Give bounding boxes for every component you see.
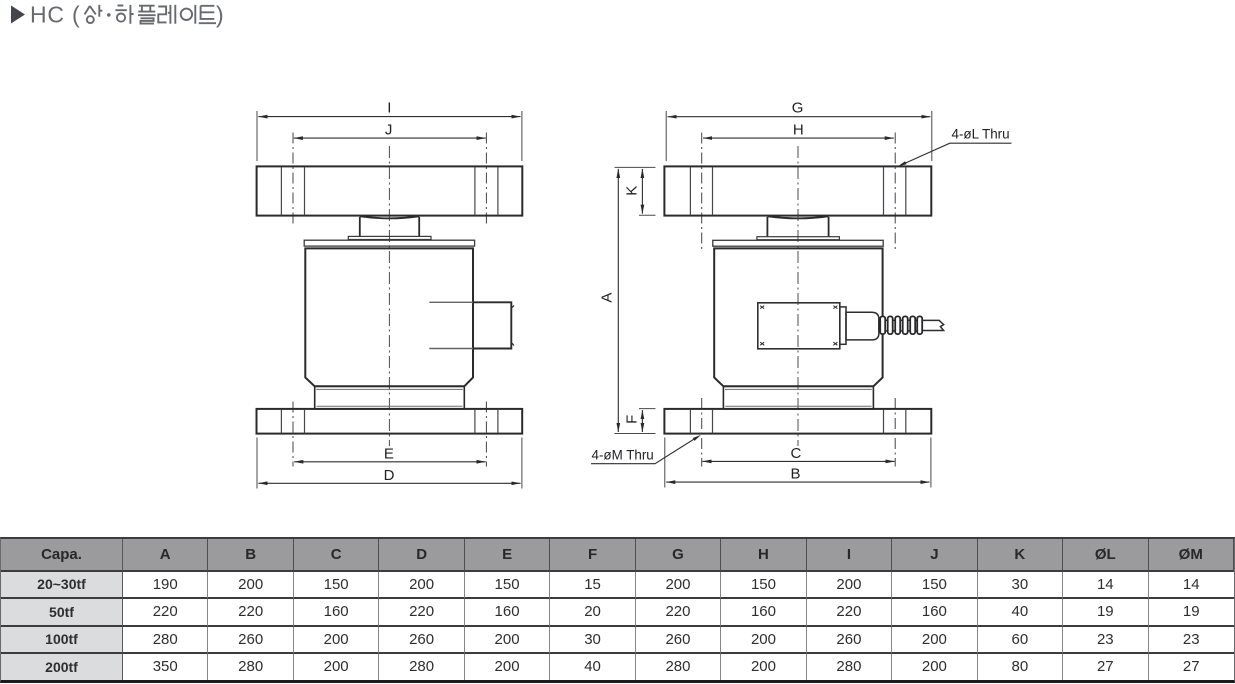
svg-text:E: E [384, 446, 394, 463]
svg-text:B: B [791, 466, 801, 483]
svg-text:C: C [791, 445, 802, 462]
svg-text:H: H [793, 122, 804, 139]
svg-text:I: I [387, 99, 391, 116]
svg-text:4-øL Thru: 4-øL Thru [952, 127, 1010, 142]
svg-text:F: F [624, 415, 641, 424]
svg-text:K: K [624, 186, 641, 196]
svg-text:4-øM Thru: 4-øM Thru [592, 448, 654, 463]
svg-text:G: G [792, 99, 804, 116]
svg-text:A: A [599, 293, 616, 303]
svg-text:HC (: HC ( [30, 2, 80, 28]
svg-text:D: D [384, 467, 395, 484]
svg-text:): ) [216, 2, 224, 28]
svg-text:J: J [385, 122, 393, 139]
